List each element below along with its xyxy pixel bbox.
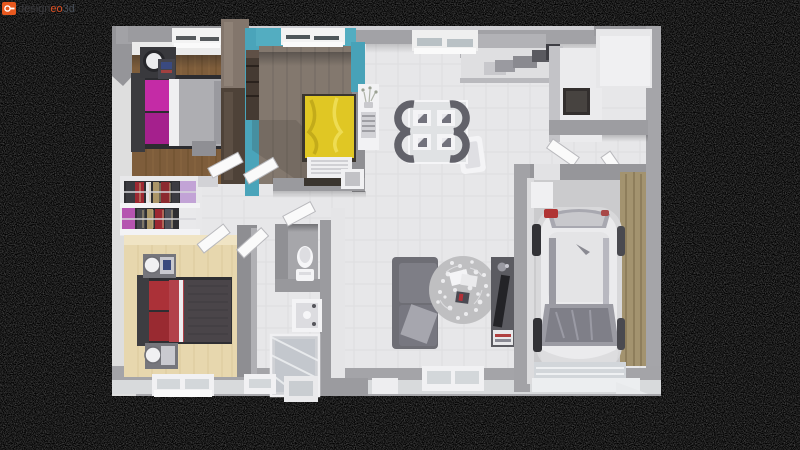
- svg-text:designeo3d: designeo3d: [18, 3, 75, 15]
